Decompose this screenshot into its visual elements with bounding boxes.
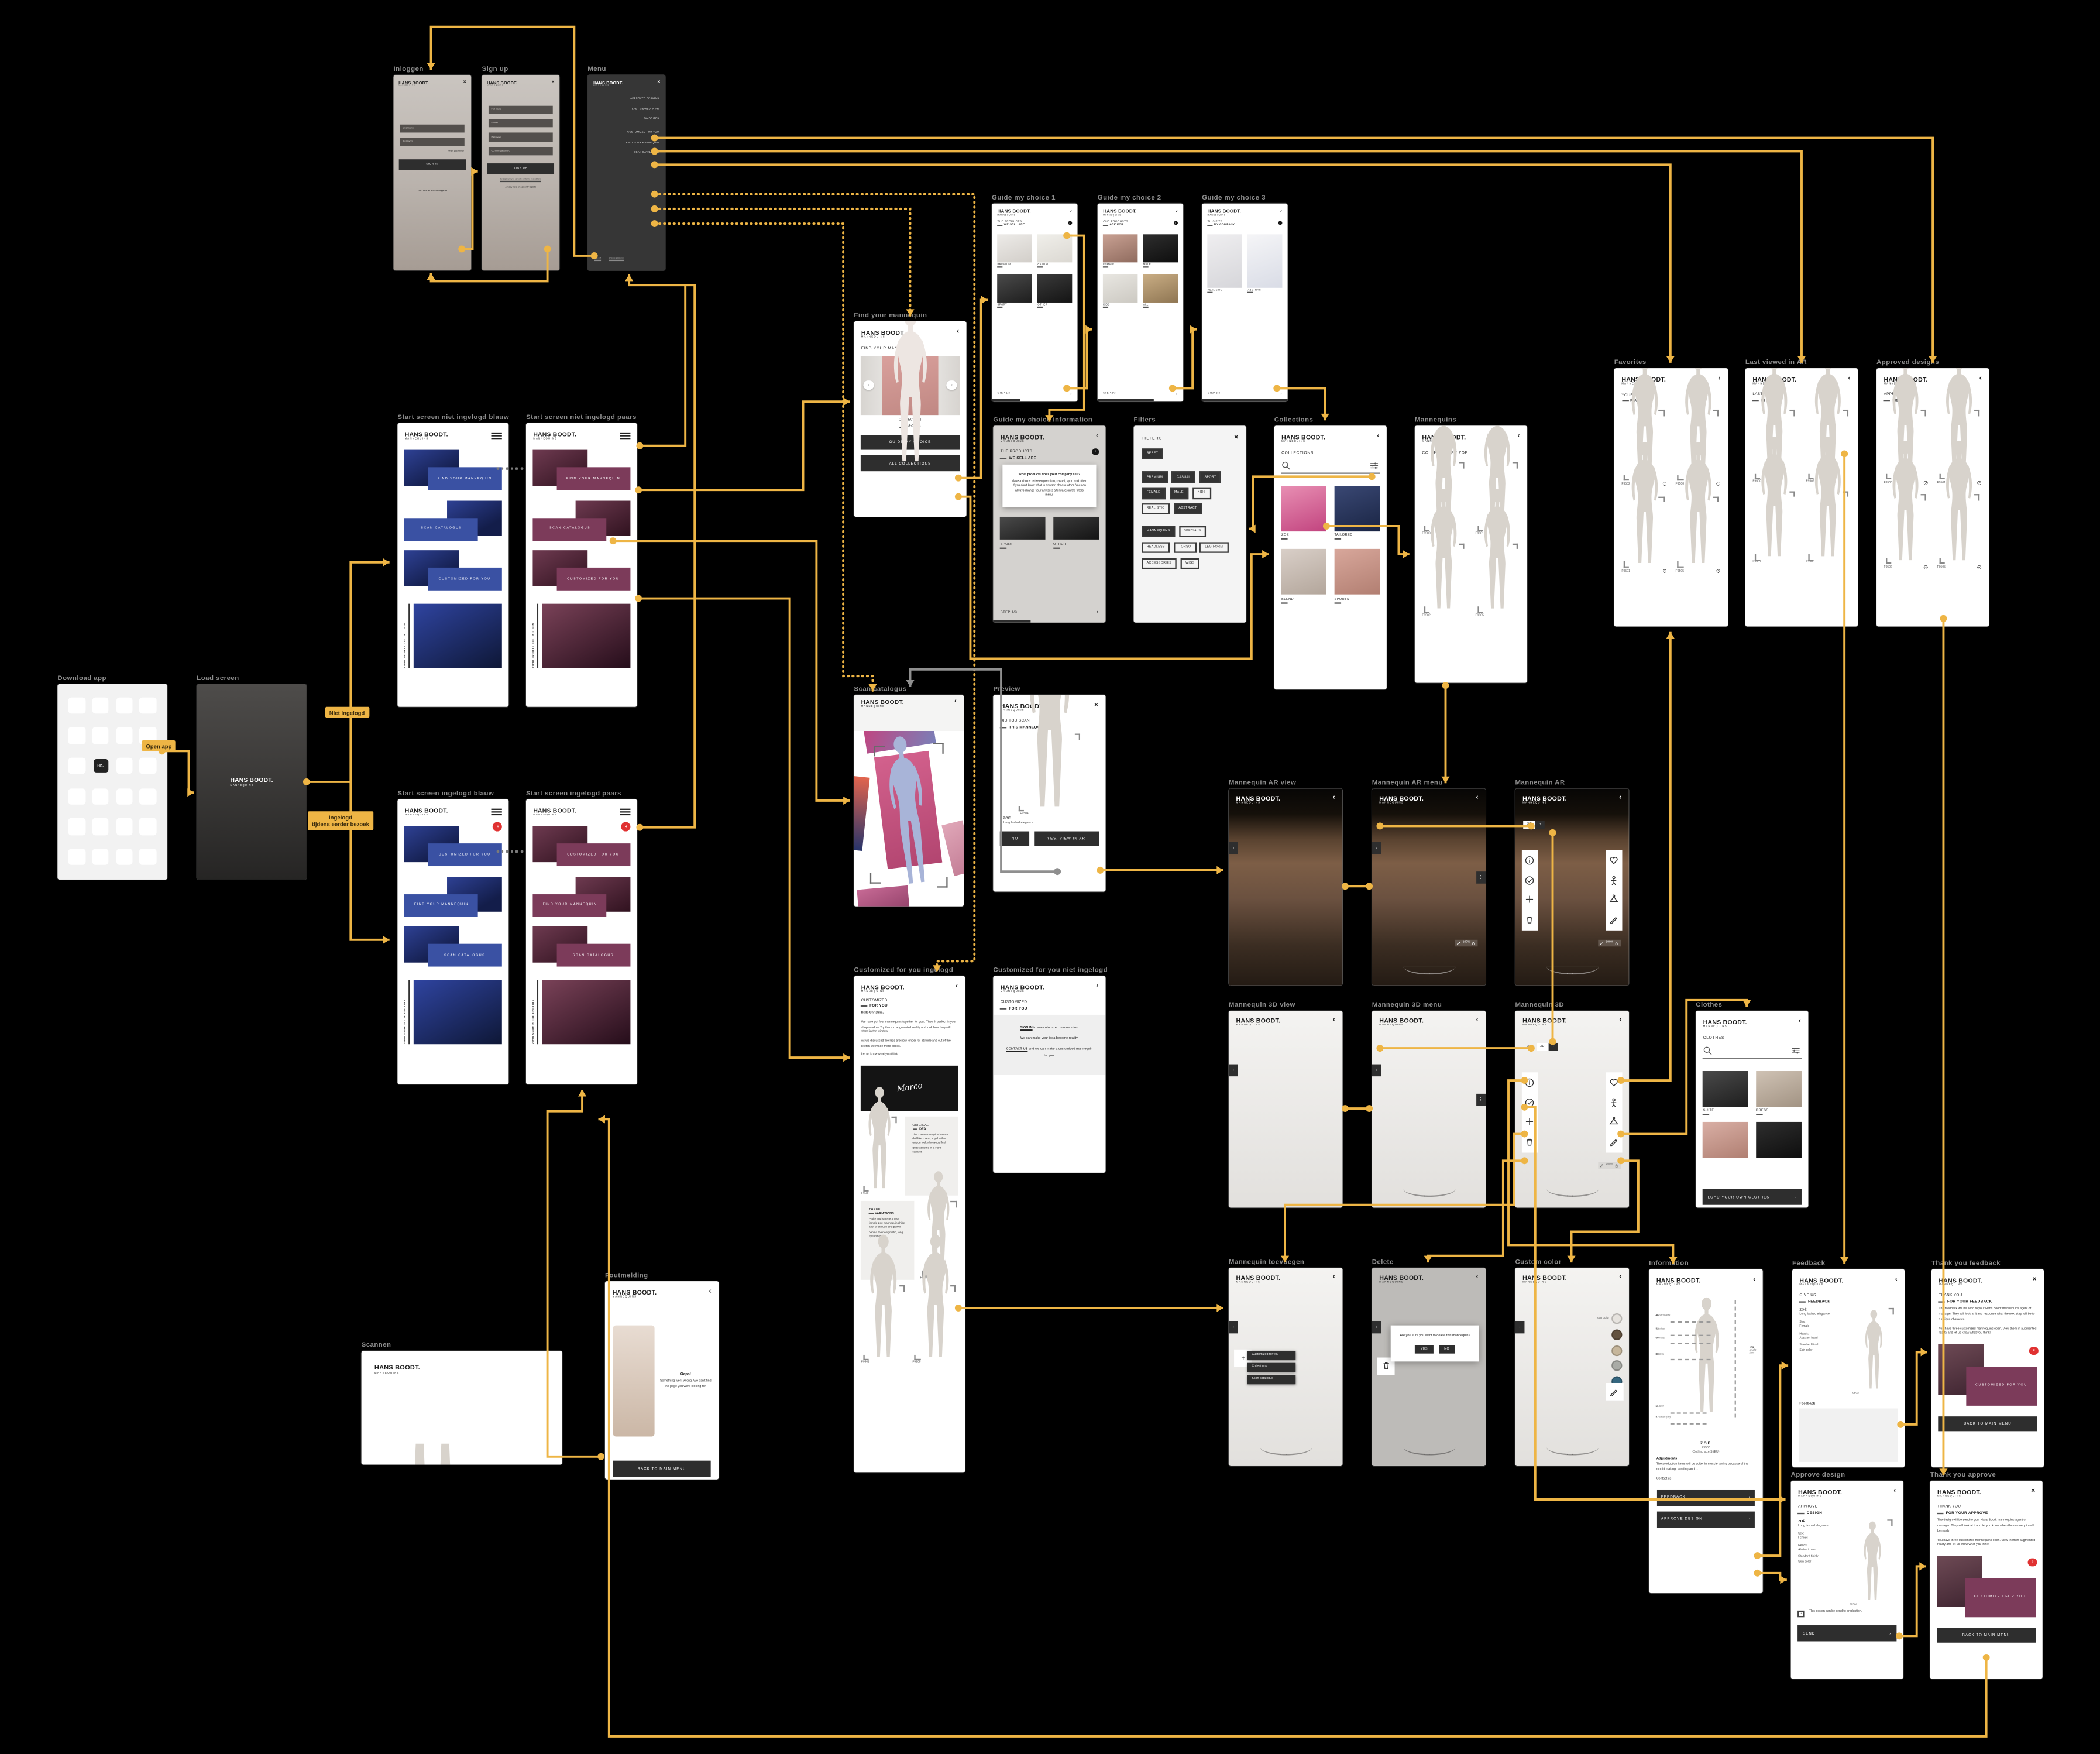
full-name-field[interactable]: Full name [489,105,552,114]
check-icon[interactable] [1525,875,1535,885]
search-icon[interactable] [1703,1045,1713,1055]
menu-item-find-your-mannequin[interactable]: FIND YOUR MANNEQUIN [626,142,659,145]
heart-icon[interactable] [1609,1078,1619,1088]
menu-icon[interactable] [492,809,501,815]
screen-label: Favorites [1614,358,1647,366]
check-icon[interactable] [1525,1097,1535,1107]
filter-chip-male[interactable]: MALE [1169,488,1188,499]
step-label: STEP 2/3 [1103,392,1116,395]
hans-boodt-logo: HANS BOODT.MANNEQUINS [1799,1277,1843,1287]
filters-title: FILTERS [1142,435,1163,441]
filter-chip-torso[interactable]: TORSO [1174,543,1196,554]
tile-photo[interactable] [1756,1123,1801,1159]
back-icon[interactable]: ‹ [957,329,959,335]
home-banner[interactable]: SCAN CATALOGUS [533,926,630,967]
progress-bar [992,399,1020,401]
foot-link[interactable]: Sign in [530,188,537,189]
button-label: NO [1012,837,1018,841]
ar-3d-toggle[interactable]: 3D‹ [1523,820,1545,828]
next-step-icon[interactable]: › [1176,392,1177,396]
button-label: LOAD YOUR OWN CLOTHES [1708,1195,1770,1199]
chevron-right-icon: › [1749,1496,1751,1500]
tile-sport[interactable]: SPORT [1001,517,1046,548]
sign-in-button[interactable]: SIGN IN [398,159,466,170]
feedback-textarea[interactable] [1799,1409,1897,1463]
back-icon[interactable]: ‹ [1096,434,1098,440]
back-icon[interactable]: ‹ [954,699,957,730]
sub-heading: Adjustments [1656,1457,1755,1461]
collapse-toggle-icon[interactable]: ‹ [1536,820,1545,828]
plus-icon[interactable] [1525,1117,1535,1127]
tile-photo[interactable] [1703,1123,1748,1159]
expand-icon[interactable] [1456,940,1461,945]
tile-label: SPORTS [1334,597,1379,603]
open-sidebar-icon[interactable]: › [1372,1321,1381,1334]
info-icon[interactable]: i [1067,221,1072,225]
info-icon[interactable]: i [1092,449,1098,455]
screen-label: Mannequin AR menu [1372,778,1443,787]
info-icon[interactable] [1525,1078,1535,1088]
back-icon[interactable]: ‹ [1280,210,1282,214]
back-icon[interactable]: ‹ [1476,1018,1478,1028]
close-icon[interactable]: × [552,80,555,85]
heading-eyebrow: THANK YOU [1937,1504,1988,1509]
banner-vertical-label: VIEW SPORTS COLLECTION [405,603,411,668]
home-banner[interactable]: CUSTOMIZED FOR YOU [405,550,501,591]
color-swatch[interactable] [1611,1329,1622,1340]
plus-icon[interactable] [1525,894,1535,904]
menu-item-scan-catalogus[interactable]: SCAN CATALOGUS [634,152,659,155]
filter-chip-female[interactable]: FEMALE [1142,488,1166,499]
filter-chip-casual[interactable]: CASUAL [1172,472,1196,483]
password-field[interactable]: Password [400,138,464,146]
mannequin-card[interactable]: F9502 [1422,543,1466,617]
pencil-icon[interactable] [1610,1386,1620,1396]
no-button[interactable]: NO [1439,1345,1455,1354]
home-banner[interactable]: FIND YOUR MANNEQUIN [533,450,630,490]
panel-text: and we can make a customized mannequin f… [1027,1048,1092,1058]
app-icon [68,697,85,714]
checkbox[interactable]: ✓ [1798,1611,1804,1617]
banner-label: CUSTOMIZED FOR YOU [439,576,491,582]
back-icon[interactable]: ‹ [1333,1275,1335,1285]
username-field[interactable]: Username [400,124,464,132]
back-icon[interactable]: ‹ [1377,434,1379,440]
screen-label: Inloggen [394,65,424,73]
mannequin-carousel[interactable]: ‹› [861,356,959,415]
panel-text: to see cutomized mannequins. [1033,1025,1079,1029]
menu-icon[interactable] [620,433,630,439]
back-to-main-menu-button[interactable]: BACK TO MAIN MENU [613,1461,712,1477]
tile-label: ZOË [1281,533,1326,539]
mannequin-figure [373,1434,492,1464]
back-icon[interactable]: ‹ [1176,210,1178,214]
hans-boodt-logo: HANS BOODT.MANNEQUINS [1103,210,1136,217]
body-text: You have three customized mannequins ope… [1939,1327,2036,1337]
hans-boodt-logo: HANS BOODT.MANNEQUINS [1001,434,1044,444]
load-your-own-clothes-button[interactable]: LOAD YOUR OWN CLOTHES› [1703,1189,1801,1204]
home-banner[interactable]: CUSTOMIZED FOR YOU4 [533,826,630,867]
hans-boodt-logo: HANS BOODT.MANNEQUINS [1236,795,1281,805]
pose-icon[interactable] [1609,1097,1619,1107]
heading-main: FOR YOU [861,1004,888,1008]
close-icon[interactable]: × [657,80,660,85]
open-sidebar-icon[interactable]: › [1515,1321,1524,1334]
mannequin-code: F9502 [1851,1392,1859,1395]
rotate-warning: You made the mannequin go up side down.T… [362,1383,562,1465]
heart-icon[interactable] [1662,568,1666,573]
toggle-3d[interactable]: 3D [1523,820,1536,828]
carousel-prev-icon[interactable]: ‹ [863,380,873,390]
filter-chip-headless[interactable]: HEADLESS [1142,543,1170,554]
tile-photo [1703,1123,1748,1159]
dots-icon[interactable] [1478,874,1483,880]
sports-collection-banner[interactable]: VIEW SPORTS COLLECTION [405,603,501,668]
logo-subtitle: MANNEQUINS [1379,1282,1424,1285]
open-sidebar-icon[interactable]: › [1372,1064,1381,1076]
tile-all[interactable]: ALL [1143,274,1178,307]
tile-kids[interactable]: KIDS [1103,274,1137,307]
heading-main: FOR YOUR APPROVE [1937,1511,1988,1516]
back-icon[interactable]: ‹ [1096,984,1098,990]
tile-premium[interactable]: PREMIUM [998,234,1032,267]
tile-sport[interactable]: SPORT [998,274,1032,307]
notification-badge: 3 [2030,1346,2039,1355]
mannequin-code: F9505 [1806,561,1814,564]
logo-title: HANS BOODT. [1236,795,1281,802]
flow-canvas: Download appHB.Load screenHANS BOODT.MAN… [0,0,2100,1754]
screen-label: Mannequins [1415,416,1456,424]
filter-chip-mannequins[interactable]: MANNEQUINS [1142,526,1175,537]
dots-icon[interactable] [1478,1097,1483,1102]
change-password-link[interactable]: Change password [609,258,624,262]
foot-link[interactable]: Sign up [439,192,447,193]
add-menu-item[interactable]: Scan catalogus [1248,1375,1296,1384]
tile-dress[interactable]: DRESS [1756,1070,1801,1114]
mannequin-card[interactable]: F9505 [1806,490,1850,564]
no-button[interactable]: NO [1001,831,1030,846]
tile-female[interactable]: FEMALE [1103,234,1137,267]
heart-icon[interactable] [1716,568,1720,573]
info-icon[interactable]: i [1173,221,1178,225]
screen-clothes: HANS BOODT.MANNEQUINS‹CLOTHESSUITEDRESSL… [1696,1011,1808,1207]
tile-photo [1037,274,1072,302]
menu-list: CUSTOMIZED FOR YOUFIND YOUR MANNEQUINSCA… [594,132,659,155]
forgot-password-link[interactable]: forgot password? [400,152,464,153]
button-label: SIGN UP [514,167,527,170]
card-label: CUSTOMIZED FOR YOU [1974,1595,2026,1601]
spec-value: Abstract head [1798,1549,1816,1552]
toggle-ar[interactable]: AR [1523,1042,1536,1051]
tile-label: SPORT [998,304,1032,308]
mannequin-grid: F9500F9501F9502F9505 [1884,410,1982,564]
confirm-password-field[interactable]: Confirm password [489,147,552,155]
lock-icon[interactable] [1615,940,1620,945]
app-icon [140,697,157,714]
check-icon[interactable] [1923,565,1928,570]
logo-subtitle: MANNEQUINS [1001,441,1044,444]
filter-chip-kids[interactable]: KIDS [1192,488,1211,499]
mannequin-card[interactable]: F9501 [1621,496,1666,575]
back-icon[interactable]: ‹ [1753,1277,1755,1283]
screen-label: Thank you approve [1930,1471,1996,1479]
hanger-icon[interactable] [1609,894,1619,904]
more-options-icon[interactable] [1476,871,1486,884]
scale-lock-badge: 100% [1598,940,1621,946]
filter-chip-row: PREMIUMCASUALSPORT [1142,472,1238,483]
back-icon[interactable]: ‹ [1333,1018,1335,1028]
tile-other[interactable]: OTHER [1037,274,1072,307]
mannequin-card[interactable]: F9501 [1752,490,1797,564]
screen-customized-niet-ingelogd: HANS BOODT.MANNEQUINS‹CUSTOMIZEDFOR YOUS… [993,976,1105,1173]
home-banner[interactable]: CUSTOMIZED FOR YOU4 [405,826,501,867]
collapse-toggle-icon[interactable]: ‹ [1549,1042,1558,1051]
pose-icon[interactable] [1609,875,1619,885]
filter-chip-accessories[interactable]: ACCESSORIES [1142,558,1177,569]
heading-main: MY COMPANY [1208,224,1235,227]
add-menu-item[interactable]: Customized for you [1248,1351,1296,1360]
trash-icon[interactable] [1381,1361,1391,1371]
viewer-left-panel [1521,1072,1538,1152]
color-swatch[interactable] [1611,1361,1622,1371]
hanger-icon[interactable] [1609,1117,1619,1127]
expand-icon[interactable] [1600,940,1604,945]
mannequin-figure [1752,434,1797,560]
mannequin-card[interactable]: F9505 [1937,495,1982,571]
feedback-button[interactable]: FEEDBACK› [1656,1490,1755,1506]
screen-thank-you-approve: HANS BOODT.MANNEQUINS×THANK YOUFOR YOUR … [1930,1481,2043,1679]
tile-blend[interactable]: BLEND [1281,550,1326,603]
screen-label: Customized for you ingelogd [854,966,953,974]
close-icon[interactable]: × [1094,703,1098,709]
mannequin-viewer: HANS BOODT.MANNEQUINS‹›100%‹› [1372,788,1486,985]
sports-collection-banner[interactable]: VIEW SPORTS COLLECTION [533,980,630,1044]
check-icon[interactable] [1977,565,1982,570]
delete-dialog: Are you sure you want to delete this man… [1391,1325,1479,1361]
screen-label: Guide my choice 1 [992,194,1056,202]
back-icon[interactable]: ‹ [1895,1277,1898,1283]
home-banner[interactable]: CUSTOMIZED FOR YOU [533,550,630,591]
open-sidebar-icon[interactable]: › [1229,1064,1238,1076]
back-icon[interactable]: ‹ [1333,795,1335,805]
close-icon[interactable]: × [1234,435,1238,441]
back-to-main-menu-button[interactable]: BACK TO MAIN MENU [1937,1628,2035,1643]
logo-title: HANS BOODT. [1001,984,1044,990]
rotate-control[interactable]: ‹› [1546,1447,1598,1456]
tile-photo [1208,234,1242,287]
heart-icon[interactable] [1609,856,1619,866]
rotate-control[interactable]: ‹› [1546,1189,1598,1197]
mannequin-card[interactable]: F9502 [1884,495,1929,571]
search-icon[interactable] [1281,460,1291,470]
open-sidebar-icon[interactable]: › [1229,1321,1238,1334]
back-icon[interactable]: ‹ [1476,795,1478,805]
home-banner[interactable]: SCAN CATALOGUS [533,500,630,541]
pencil-icon[interactable] [1609,914,1619,924]
send-button[interactable]: SEND› [1798,1626,1896,1641]
screen-header: HANS BOODT.MANNEQUINS‹ [1001,434,1098,444]
logo-subtitle: MANNEQUINS [1236,802,1281,805]
trash-icon[interactable] [1525,914,1535,924]
home-banner[interactable]: FIND YOUR MANNEQUIN [533,877,630,917]
mannequin-summary: ZOËLong lashed elegance.Sex:FemaleHeads:… [1799,1309,1897,1395]
menu-icon[interactable] [620,809,630,815]
pencil-icon[interactable] [1606,1383,1623,1401]
screen-header: HANS BOODT.MANNEQUINS‹ [1703,1019,1801,1029]
back-icon[interactable]: ‹ [1619,795,1621,805]
tile-abstract[interactable]: ABSTRACT [1247,234,1282,293]
back-icon[interactable]: ‹ [1893,1488,1896,1495]
mannequin-card[interactable]: F9505 [1676,496,1721,575]
color-swatch[interactable] [1611,1345,1622,1355]
screen-guide-1: HANS BOODT.MANNEQUINS‹THE PRODUCTSWE SEL… [992,204,1077,402]
filter-chip-reset[interactable]: RESET [1142,448,1163,459]
tile-casual[interactable]: CASUAL [1037,234,1072,267]
tile-realistic[interactable]: REALISTIC [1208,234,1242,293]
back-icon[interactable]: ‹ [1799,1019,1801,1025]
carousel-next-icon[interactable]: › [947,380,957,390]
tile-tailored[interactable]: TAILORED [1334,486,1379,539]
hans-boodt-logo: HANS BOODT.MANNEQUINS [1379,795,1424,805]
back-icon[interactable]: ‹ [1476,1275,1478,1285]
hans-boodt-logo: HANS BOODT.MANNEQUINS [1798,1488,1842,1498]
close-icon[interactable]: × [2031,1488,2035,1495]
trash-icon[interactable] [1525,1136,1535,1146]
next-step-icon[interactable]: › [1097,609,1098,615]
back-icon[interactable]: ‹ [1619,1018,1621,1028]
search-input[interactable] [1281,460,1379,474]
error-photo [613,1325,654,1436]
heading-main: FEEDBACK [1799,1299,1830,1304]
tile-grid: ZOËTAILOREDBLENDSPORTS [1281,486,1379,592]
back-icon[interactable]: ‹ [956,984,958,990]
filter-chip-leg-form[interactable]: LEG FORM [1200,543,1228,554]
sliders-icon[interactable] [1369,460,1379,470]
ar-3d-toggle[interactable]: AR3D‹ [1523,1042,1558,1051]
back-to-main-menu-button[interactable]: BACK TO MAIN MENU [1939,1416,2036,1432]
menu-item-customized-for-you[interactable]: CUSTOMIZED FOR YOU [627,132,659,135]
home-banner[interactable]: SCAN CATALOGUS [405,926,501,967]
yes-view-in-ar-button[interactable]: YES, VIEW IN AR [1034,831,1098,846]
rotate-control[interactable]: ‹› [1403,1189,1455,1197]
search-input[interactable] [1703,1045,1801,1059]
panel-link[interactable]: SIGN IN [1020,1025,1032,1029]
back-icon[interactable]: ‹ [709,1289,712,1296]
hans-boodt-logo: HANS BOODT.MANNEQUINS [1939,1277,1982,1287]
e-mail-field[interactable]: E-mail [489,119,552,128]
tile-male[interactable]: MALE [1143,234,1178,267]
rotate-control[interactable]: ‹› [1403,1447,1455,1456]
filter-chip-sport[interactable]: SPORT [1199,472,1221,483]
sports-collection-banner[interactable]: VIEW SPORTS COLLECTION [405,980,501,1044]
customized-for-you-card[interactable]: CUSTOMIZED FOR YOU3 [1939,1344,2036,1405]
tile-other[interactable]: OTHER [1053,517,1098,548]
button-label: APPROVE DESIGN [1661,1517,1703,1521]
hans-boodt-logo: HANS BOODT.MANNEQUINS [230,777,273,787]
filter-chip-row: MANNEQUINSSPECIALS [1142,526,1238,537]
back-icon[interactable]: ‹ [1619,1275,1621,1285]
rotate-control[interactable]: ‹› [1546,967,1598,976]
approve-design-button[interactable]: APPROVE DESIGN› [1656,1511,1755,1527]
logo-title: HANS BOODT. [1939,1277,1982,1283]
sign-up-button[interactable]: SIGN UP [487,163,554,173]
lock-icon[interactable] [1615,1163,1620,1168]
menu-item-last-viewed-in-ar[interactable]: LAST VIEWED IN AR [632,108,659,111]
customized-for-you-card[interactable]: CUSTOMIZED FOR YOU3 [1937,1556,2035,1617]
account-switch-text: Don't have an account? Sign up [394,192,472,193]
foot-text: Don't have an account? [418,192,439,193]
tile-sports[interactable]: SPORTS [1334,550,1379,603]
sports-collection-banner[interactable]: VIEW SPORTS COLLECTION [533,603,630,668]
sign-out-link[interactable]: Sign out [594,258,601,262]
pencil-icon[interactable] [1609,1136,1619,1146]
menu-item-approved-designs[interactable]: APPROVED DESIGNS [630,98,659,101]
open-sidebar-icon[interactable]: › [1229,842,1238,854]
panel-link[interactable]: CONTACT US [1006,1048,1028,1052]
logo-title: HANS BOODT. [861,699,904,705]
menu-icon[interactable] [492,433,501,439]
filter-chip-realistic[interactable]: REALISTIC [1142,504,1170,515]
filter-chip-wigs[interactable]: WIGS [1180,558,1199,569]
rotate-control[interactable]: ‹› [1403,967,1455,976]
next-step-icon[interactable]: › [1281,392,1282,396]
info-icon[interactable]: i [1277,221,1282,225]
filter-chip-specials[interactable]: SPECIALS [1179,526,1206,537]
password-field[interactable]: Password [489,133,552,142]
next-step-icon[interactable]: › [1070,392,1071,396]
add-menu-item[interactable]: Collections [1248,1363,1296,1372]
tile-suite[interactable]: SUITE [1703,1070,1748,1114]
sub-heading: Feedback [1799,1402,1897,1406]
open-sidebar-icon[interactable]: › [1372,842,1381,854]
screen-header: HANS BOODT.MANNEQUINS [405,807,501,817]
screen-header: HANS BOODT.MANNEQUINS‹ [1001,984,1098,994]
mannequin-figure [1475,486,1520,613]
mannequin-grid: F9500F9501F9502F9505 [1422,462,1520,609]
toggle-3d[interactable]: 3D [1536,1042,1549,1051]
home-banner[interactable]: FIND YOUR MANNEQUIN [405,877,501,917]
screen-home-i-paars: HANS BOODT.MANNEQUINSCUSTOMIZED FOR YOU4… [526,799,637,1084]
close-icon[interactable]: × [2032,1277,2036,1283]
filter-chip-row: ACCESSORIESWIGS [1142,558,1238,569]
tile-label: KIDS [1103,304,1137,308]
expand-icon[interactable] [1600,1163,1604,1168]
lock-icon[interactable] [1472,940,1476,945]
app-icon [116,697,133,714]
close-icon[interactable]: × [463,80,466,85]
more-options-icon[interactable] [1476,1093,1486,1106]
home-banner[interactable]: SCAN CATALOGUS [405,500,501,541]
yes-button[interactable]: YES [1415,1345,1433,1354]
home-banner[interactable]: FIND YOUR MANNEQUIN [405,450,501,490]
mannequin-card[interactable]: F9505 [1475,543,1520,617]
filter-chip-premium[interactable]: PREMIUM [1142,472,1168,483]
rotate-control[interactable]: ‹› [1259,1447,1311,1456]
tile-zoë[interactable]: ZOË [1281,486,1326,539]
hans-boodt-app-icon[interactable]: HB. [93,758,108,773]
screen-header: HANS BOODT.MANNEQUINS‹ [1281,434,1379,444]
mannequin-code: F9501 [1621,570,1630,573]
logo-subtitle: MANNEQUINS [1103,215,1136,217]
screen-filters: FILTERS×RESETPREMIUMCASUALSPORTFEMALEMAL… [1134,425,1246,622]
info-icon[interactable] [1525,856,1535,866]
screen-label: Last viewed in AR [1745,358,1807,366]
back-icon[interactable]: ‹ [1070,210,1072,214]
filter-chip-abstract[interactable]: ABSTRACT [1174,504,1202,515]
button-label: BACK TO MAIN MENU [1964,1422,2012,1426]
sliders-icon[interactable] [1791,1045,1801,1055]
menu-item-favorites[interactable]: FAVORITES [644,118,659,121]
